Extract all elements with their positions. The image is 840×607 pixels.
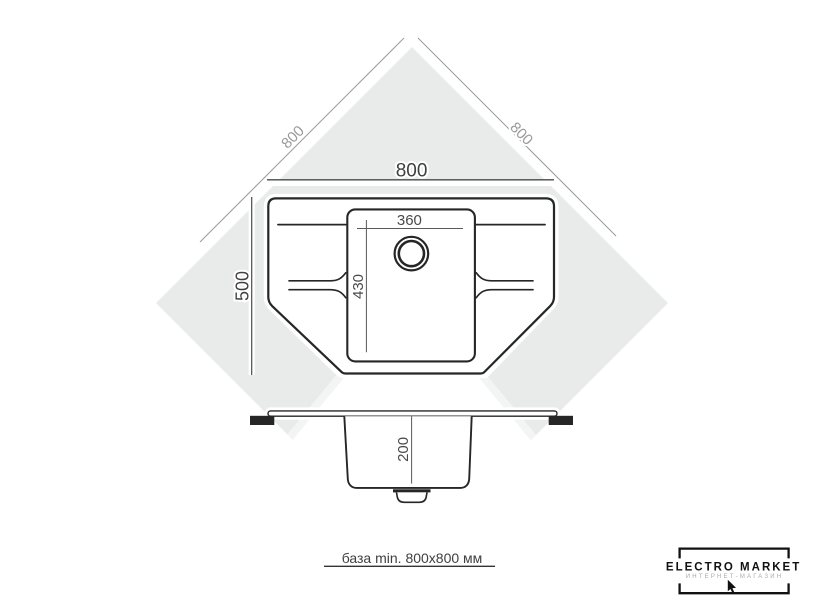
- svg-text:200: 200: [395, 437, 412, 462]
- svg-text:430: 430: [350, 274, 367, 299]
- svg-text:ИНТЕРНЕТ-МАГАЗИН: ИНТЕРНЕТ-МАГАЗИН: [686, 574, 784, 580]
- svg-text:360: 360: [397, 212, 422, 229]
- svg-text:база min. 800x800 мм: база min. 800x800 мм: [342, 550, 483, 566]
- svg-text:500: 500: [233, 271, 253, 301]
- svg-text:ELECTRO MARKET: ELECTRO MARKET: [666, 562, 801, 574]
- svg-text:800: 800: [396, 161, 428, 182]
